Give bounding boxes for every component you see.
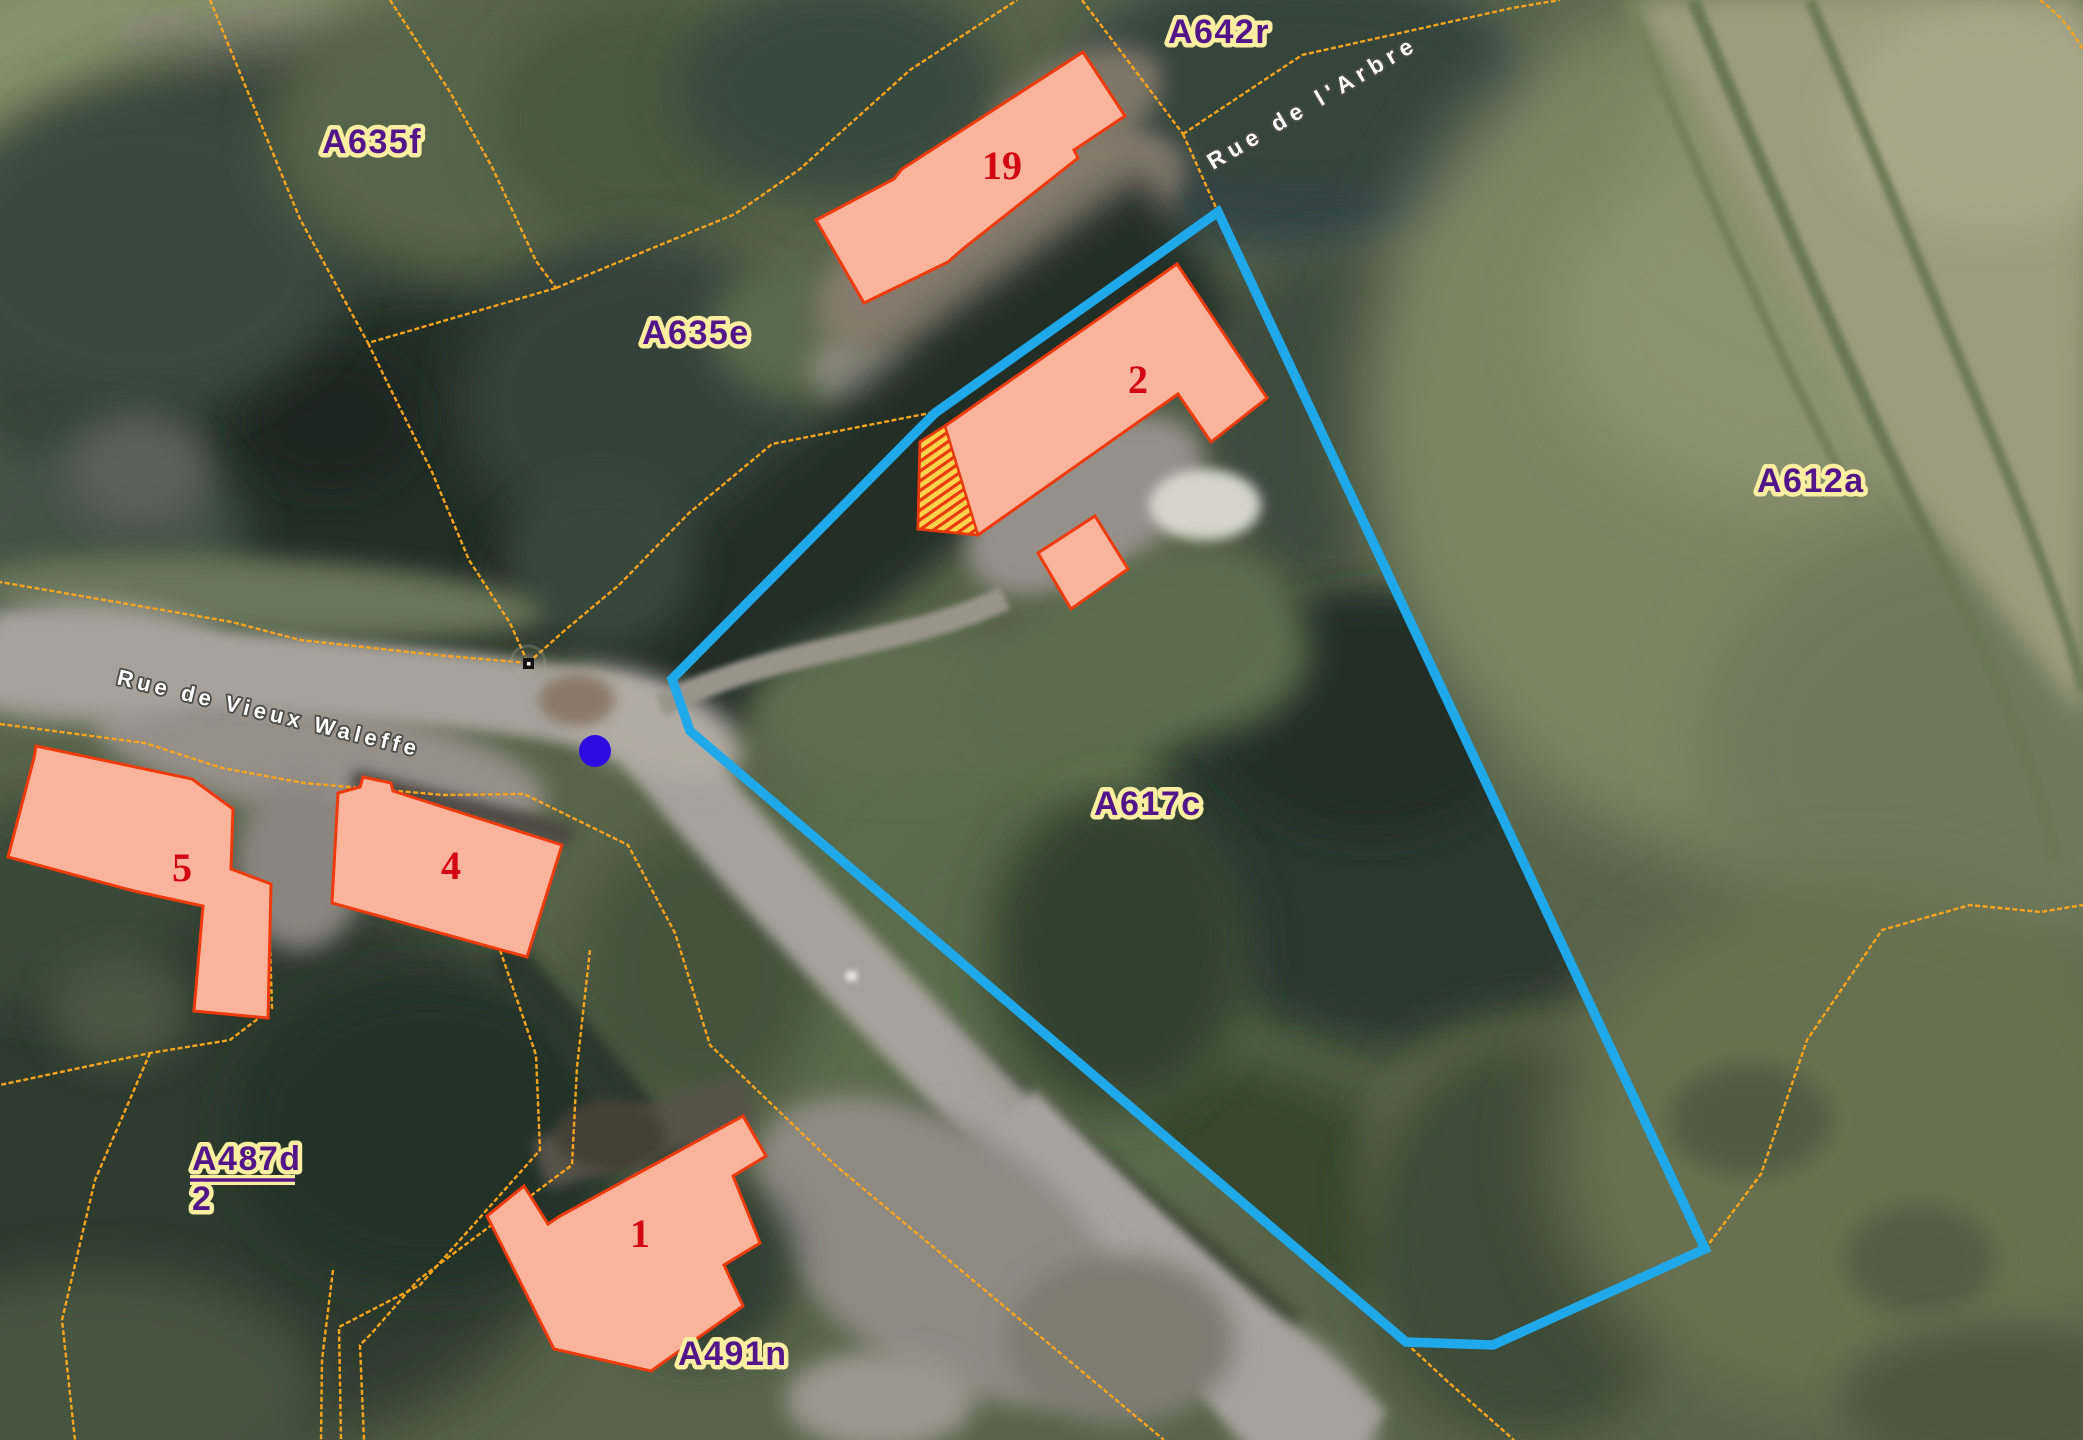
svg-text:19: 19 [982, 143, 1022, 188]
svg-text:1: 1 [630, 1211, 650, 1256]
svg-text:A612a: A612a [1757, 462, 1865, 500]
svg-text:2: 2 [1128, 357, 1148, 402]
svg-text:A487d: A487d [192, 1140, 302, 1178]
svg-text:A642r: A642r [1168, 13, 1270, 51]
svg-text:A635e: A635e [642, 314, 750, 352]
svg-text:A491n: A491n [678, 1335, 788, 1373]
svg-text:A635f: A635f [322, 123, 422, 161]
svg-text:5: 5 [172, 845, 192, 890]
svg-text:A617c: A617c [1094, 785, 1202, 823]
svg-text:4: 4 [441, 843, 461, 888]
svg-text:2: 2 [192, 1180, 212, 1218]
